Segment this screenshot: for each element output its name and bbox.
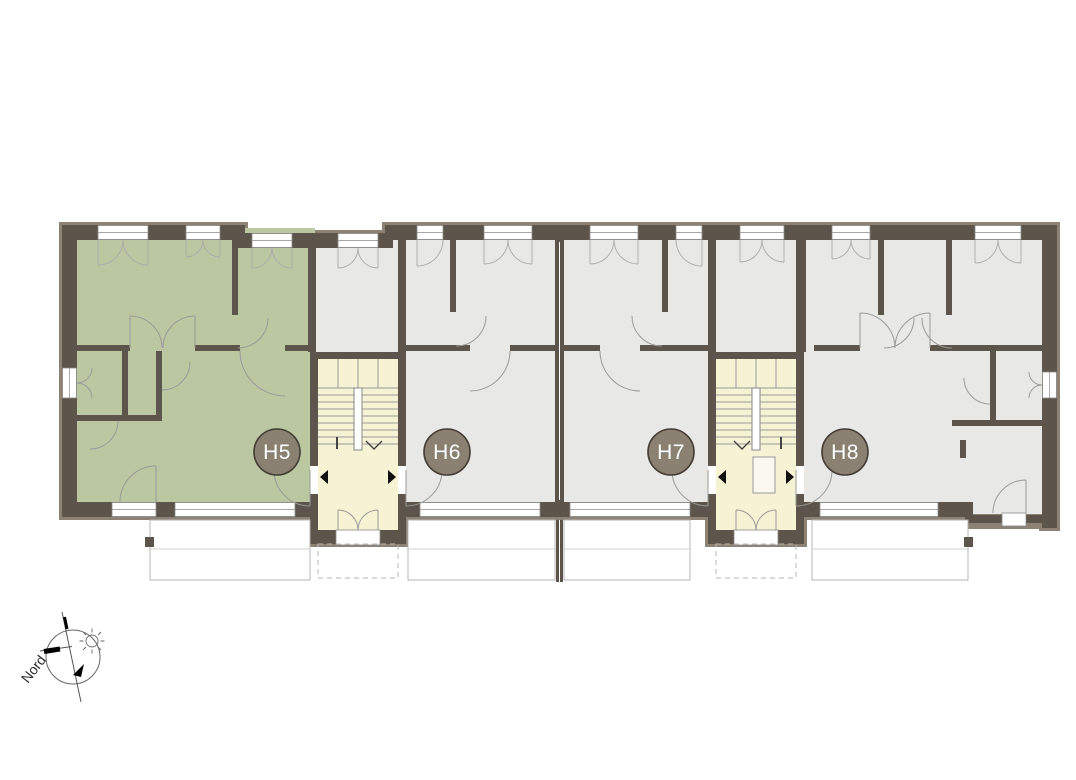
badge-h6-label: H6 — [433, 441, 461, 464]
sun-icon — [86, 635, 98, 647]
terrace-post-left — [145, 537, 154, 547]
compass-circle — [46, 630, 100, 684]
terrace-h8 — [812, 520, 968, 580]
terrace-h6 — [408, 520, 555, 580]
badge-h8-label: H8 — [831, 441, 859, 464]
badge-h7[interactable]: H7 — [648, 429, 694, 475]
badge-h5[interactable]: H5 — [254, 429, 300, 475]
entrance-path-left — [318, 544, 398, 578]
badge-h8[interactable]: H8 — [822, 429, 868, 475]
stair-divider — [354, 388, 362, 450]
stair-divider — [752, 388, 760, 450]
unit-h6-area[interactable] — [403, 228, 559, 514]
unit-h7-area[interactable] — [559, 228, 711, 514]
badge-h7-label: H7 — [657, 441, 685, 464]
compass-north-label: Nord — [18, 652, 49, 686]
terrace-h5 — [150, 520, 310, 580]
terrace-h7 — [564, 520, 690, 580]
compass: Nord — [18, 612, 105, 702]
party-wall-gap-lines — [559, 242, 560, 582]
sun-rays-icon — [80, 629, 105, 654]
floor-plan-page: H5 H6 H7 H8 Nord — [0, 0, 1076, 780]
elevator-shaft — [753, 457, 775, 493]
terrace-post-right — [964, 537, 973, 547]
badge-h6[interactable]: H6 — [424, 429, 470, 475]
room-above-right-stairwell — [711, 236, 801, 356]
floor-plan: H5 H6 H7 H8 Nord — [0, 0, 1076, 780]
north-needle — [44, 649, 60, 652]
entrance-path-right — [716, 544, 796, 578]
badge-h5-label: H5 — [263, 441, 291, 464]
